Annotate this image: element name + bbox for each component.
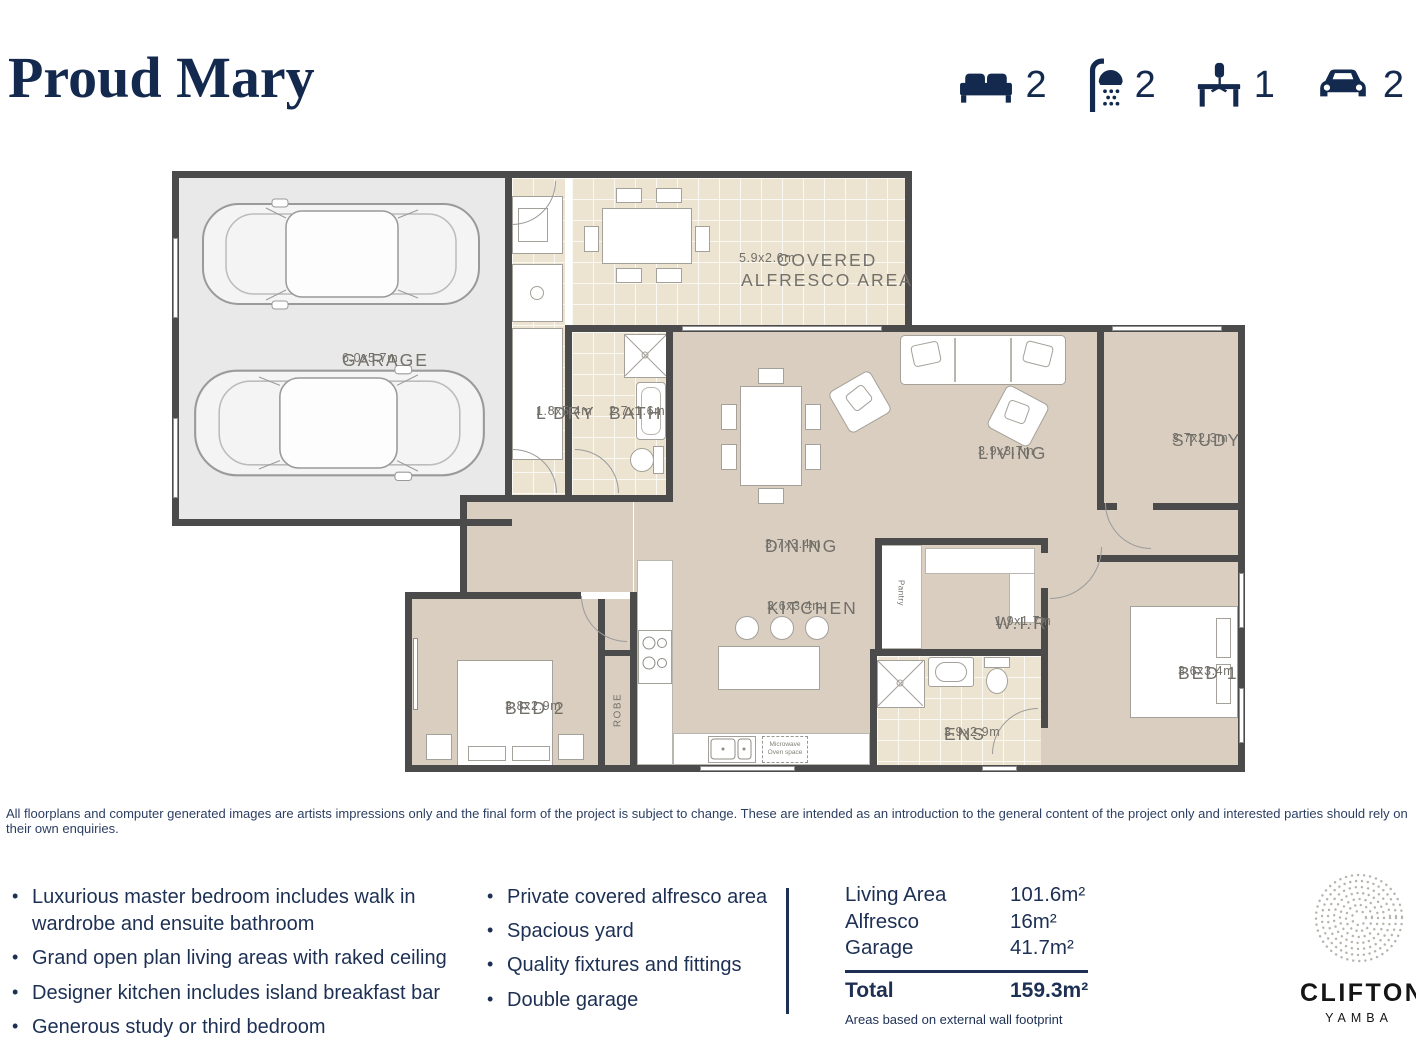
wall	[1041, 588, 1048, 728]
sofa-seam	[1010, 338, 1012, 382]
feature-item: Private covered alfresco area	[483, 884, 773, 911]
double-sink	[708, 736, 756, 763]
chair	[616, 188, 642, 203]
shower-icon	[1087, 58, 1123, 112]
sofa-seam	[954, 338, 956, 382]
toilet-tank	[653, 446, 664, 474]
bedroom-count: 2	[1025, 64, 1046, 107]
car-topview	[200, 198, 482, 310]
chair	[805, 404, 821, 430]
bathroom-count: 2	[1135, 64, 1156, 107]
brand-location: YAMBA	[1300, 1011, 1416, 1025]
area-value: 16m²	[1010, 909, 1057, 936]
wall	[870, 649, 877, 772]
toilet	[986, 668, 1008, 694]
wall	[405, 765, 1245, 772]
area-summary: Living Area 101.6m² Alfresco 16m² Garage…	[845, 882, 1095, 1027]
window	[700, 766, 795, 771]
area-value: 101.6m²	[1010, 882, 1085, 909]
property-stats: 2 2	[959, 58, 1404, 112]
kitchen-island	[718, 646, 820, 690]
wall	[405, 592, 412, 772]
floorplan-page: Proud Mary 2	[0, 0, 1416, 1062]
wall	[172, 171, 912, 178]
car-topview	[192, 364, 487, 482]
stool	[805, 616, 829, 640]
study-count: 1	[1254, 64, 1275, 107]
wall	[1041, 538, 1048, 553]
wardrobe-shelf	[925, 548, 1035, 574]
area-row: Garage 41.7m²	[845, 935, 1095, 962]
bedside-table	[558, 734, 584, 760]
wall	[630, 592, 637, 772]
tub-drain	[530, 286, 544, 300]
brand-logo: CLIFTON YAMBA	[1300, 868, 1416, 1025]
feature-item: Double garage	[483, 987, 773, 1014]
total-value: 159.3m²	[1010, 979, 1088, 1003]
stat-study: 1	[1196, 60, 1275, 110]
chair	[758, 488, 784, 504]
dining-table	[740, 386, 802, 486]
wall	[1097, 555, 1238, 562]
wall	[875, 538, 882, 655]
feature-item: Generous study or third bedroom	[8, 1014, 470, 1041]
feature-item: Luxurious master bedroom includes walk i…	[8, 884, 470, 938]
wall	[870, 649, 1045, 656]
stat-bathrooms: 2	[1087, 58, 1156, 112]
chair	[616, 268, 642, 283]
wall	[598, 650, 637, 656]
window	[413, 638, 418, 710]
wall	[405, 592, 581, 599]
vanity-basin	[935, 662, 967, 682]
toilet-tank	[984, 657, 1010, 668]
shower	[624, 334, 668, 378]
pillow	[512, 746, 550, 761]
stool	[735, 616, 759, 640]
page-title: Proud Mary	[8, 44, 315, 111]
laundry-cabinet	[512, 328, 563, 460]
window	[982, 766, 1017, 771]
area-row: Alfresco 16m²	[845, 909, 1095, 936]
window	[1239, 688, 1244, 743]
wall	[666, 332, 673, 502]
window	[173, 418, 178, 498]
chair	[721, 404, 737, 430]
wall	[505, 171, 512, 502]
feature-item: Spacious yard	[483, 918, 773, 945]
sliding-door	[682, 326, 882, 331]
wall	[1097, 325, 1104, 503]
car-icon	[1315, 67, 1371, 103]
chair	[758, 368, 784, 384]
microwave-label: Microwave Oven space	[764, 741, 806, 757]
area-label: Garage	[845, 935, 1010, 962]
toilet	[630, 448, 654, 472]
cooktop	[638, 630, 672, 684]
window	[1112, 326, 1222, 331]
area-footnote: Areas based on external wall footprint	[845, 1012, 1095, 1027]
area-label: Living Area	[845, 882, 1010, 909]
floor-plan: Microwave Oven space Pantry GARAGE 6.	[172, 168, 1245, 779]
chair	[721, 444, 737, 470]
window	[1239, 573, 1244, 628]
stat-garage: 2	[1315, 64, 1404, 107]
feature-list-2: Private covered alfresco area Spacious y…	[483, 884, 773, 1021]
bed-icon	[959, 67, 1013, 103]
area-value: 41.7m²	[1010, 935, 1074, 962]
robe-label: ROBE	[613, 693, 624, 727]
window	[173, 238, 178, 318]
chair	[656, 188, 682, 203]
shower	[877, 660, 925, 708]
chair	[584, 226, 599, 252]
area-total-row: Total 159.3m²	[845, 979, 1095, 1003]
stat-bedrooms: 2	[959, 64, 1046, 107]
area-label: Alfresco	[845, 909, 1010, 936]
total-label: Total	[845, 979, 1010, 1003]
feature-item: Designer kitchen includes island breakfa…	[8, 980, 470, 1007]
bottom-section: Luxurious master bedroom includes walk i…	[0, 880, 1416, 1060]
disclaimer-text: All floorplans and computer generated im…	[6, 806, 1410, 836]
stool	[770, 616, 794, 640]
pillow	[1216, 618, 1231, 658]
chair	[805, 444, 821, 470]
wall	[1153, 503, 1245, 510]
total-divider	[845, 970, 1088, 973]
feature-list-1: Luxurious master bedroom includes walk i…	[8, 884, 470, 1048]
wall	[875, 538, 1045, 545]
chair	[656, 268, 682, 283]
pantry-label: Pantry	[897, 580, 906, 606]
bedside-table	[426, 734, 452, 760]
garage-count: 2	[1383, 64, 1404, 107]
brand-name: CLIFTON	[1300, 979, 1416, 1008]
pillow	[468, 746, 506, 761]
outdoor-table	[602, 208, 692, 264]
divider	[786, 888, 789, 1014]
feature-item: Quality fixtures and fittings	[483, 952, 773, 979]
area-row: Living Area 101.6m²	[845, 882, 1095, 909]
hall-floor	[467, 502, 633, 592]
feature-item: Grand open plan living areas with raked …	[8, 945, 470, 972]
wall	[460, 495, 673, 502]
logo-dots-icon	[1309, 868, 1409, 968]
desk-icon	[1196, 60, 1242, 110]
wall	[460, 495, 467, 592]
chair	[695, 226, 710, 252]
